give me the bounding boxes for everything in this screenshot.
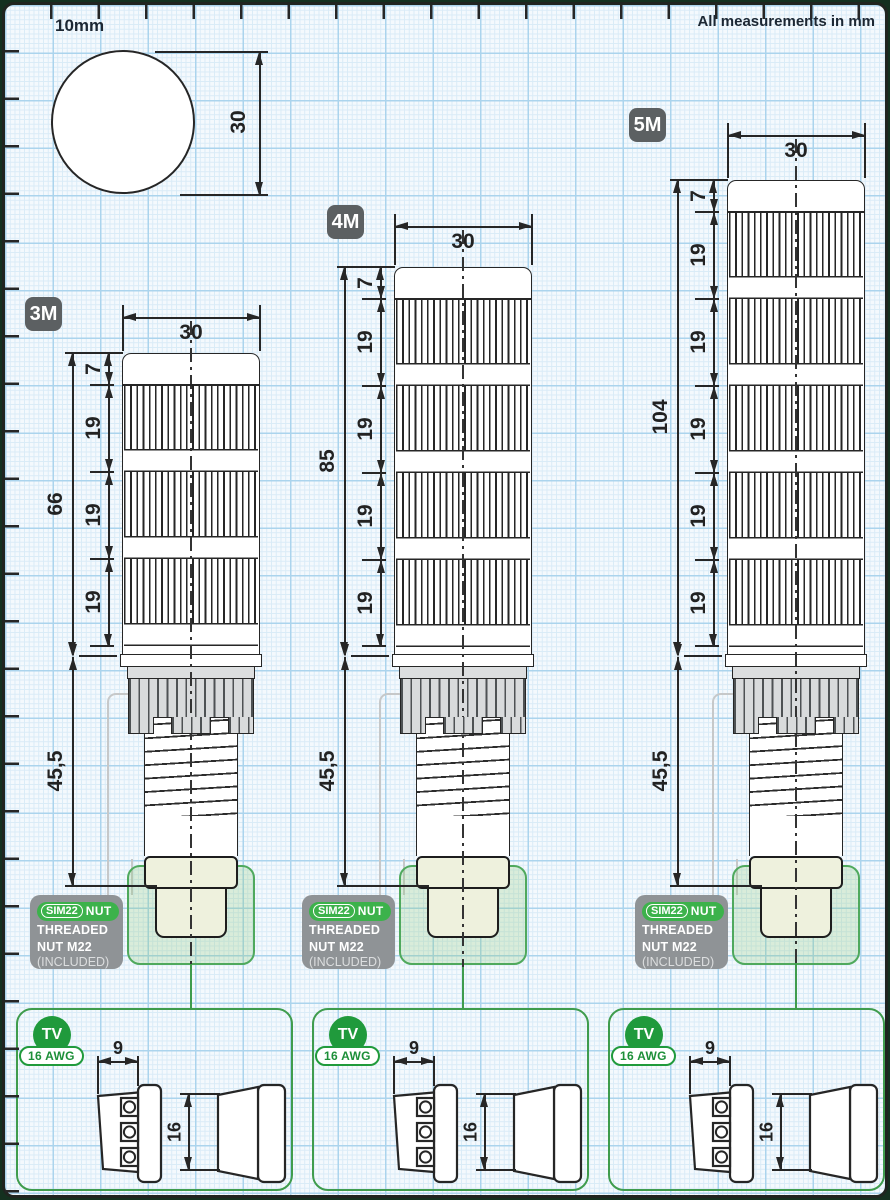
drawing-primitive: [670, 885, 762, 887]
module-height-label: 19: [687, 417, 711, 440]
wire-gauge-badge: 16 AWG: [611, 1046, 676, 1066]
drawing-primitive: [90, 471, 114, 473]
tower-3m-badge: 3M: [25, 297, 62, 331]
module-height-label: 19: [687, 330, 711, 353]
drawing-primitive: [395, 222, 408, 230]
module-height-label: 19: [82, 503, 106, 526]
overall-height-label: 66: [44, 492, 68, 515]
drawing-primitive: (INCLUDED): [642, 955, 728, 969]
terminal-height-label: 16: [165, 1122, 186, 1142]
terminal-width-label: 9: [394, 1038, 434, 1059]
drawing-primitive: [259, 52, 261, 195]
sim22-nut-pill: SIM22NUT: [309, 902, 391, 921]
cap-height-label: 7: [354, 277, 378, 289]
drawing-primitive: [72, 657, 74, 886]
drawing-primitive: [728, 131, 741, 139]
centerline: [190, 321, 191, 967]
drawing-primitive: [400, 717, 426, 734]
wire-gauge-badge: 16 AWG: [19, 1046, 84, 1066]
module-height-label: 19: [687, 591, 711, 614]
drawing-primitive: [810, 1087, 850, 1179]
drawing-primitive: [128, 717, 154, 734]
drawing-primitive: [90, 645, 114, 647]
detail-connector-line: [795, 963, 797, 1009]
drawing-primitive: THREADED: [37, 923, 123, 937]
centerline: [462, 230, 463, 967]
drawing-primitive: [684, 655, 722, 657]
drawing-primitive: [98, 1057, 111, 1065]
drawing-primitive: (INCLUDED): [309, 955, 395, 969]
sim22-nut-pill: SIM22NUT: [37, 902, 119, 921]
drawing-primitive: [433, 1056, 435, 1086]
base-height-label: 45,5: [316, 751, 340, 792]
sim22-nut-badge: SIM22NUT THREADED NUT M22 (INCLUDED): [635, 895, 728, 969]
module-height-label: 19: [354, 417, 378, 440]
drawing-primitive: [138, 1085, 161, 1182]
tower-5m-badge: 5M: [629, 108, 666, 142]
drawing-primitive: [247, 313, 260, 321]
drawing-primitive: [677, 657, 679, 886]
sim22-logo: SIM22: [646, 904, 688, 918]
drawing-primitive: [65, 885, 157, 887]
drawing-primitive: [393, 1056, 395, 1094]
ruler-ticks-left: [5, 5, 19, 1195]
drawing-primitive: [68, 353, 76, 366]
overall-height-label: 104: [649, 399, 673, 434]
drawing-primitive: [420, 1151, 431, 1162]
drawing-primitive: [776, 1157, 784, 1170]
drawing-primitive: [776, 1094, 784, 1107]
graph-paper: 10mm All measurements in mm 30 3M 30: [2, 2, 888, 1198]
terminal-height-label: 16: [461, 1122, 482, 1142]
drawing-primitive: (INCLUDED): [37, 955, 123, 969]
drawing-primitive: [728, 135, 865, 137]
lens-diameter-label: 30: [227, 110, 251, 133]
drawing-primitive: [519, 222, 532, 230]
terminal-detail-box: TV 16 AWG 9 16: [608, 1008, 885, 1191]
drawing-primitive: [716, 1151, 727, 1162]
drawing-primitive: [554, 1085, 581, 1182]
centerline: [795, 139, 796, 967]
drawing-primitive: [695, 211, 719, 213]
terminal-width-label: 9: [98, 1038, 138, 1059]
drawing-primitive: [677, 180, 679, 655]
module-height-label: 19: [82, 416, 106, 439]
drawing-primitive: [833, 717, 859, 734]
detail-connector-line: [190, 963, 192, 1009]
terminal-detail-box: TV 16 AWG 9 16: [312, 1008, 589, 1191]
drawing-primitive: [514, 1087, 554, 1179]
drawing-primitive: [90, 558, 114, 560]
base-height-label: 45,5: [649, 751, 673, 792]
cap-height-label: 7: [82, 363, 106, 375]
drawing-primitive: [124, 1126, 135, 1137]
drawing-primitive: [155, 51, 268, 53]
drawing-primitive: [344, 657, 346, 886]
drawing-primitive: [259, 305, 261, 351]
module-height-label: 19: [354, 330, 378, 353]
drawing-primitive: [776, 717, 816, 734]
drawing-primitive: [480, 1094, 488, 1107]
drawing-primitive: [228, 717, 254, 734]
drawing-primitive: [695, 385, 719, 387]
drawing-primitive: NUT: [358, 904, 384, 918]
drawing-primitive: [255, 52, 263, 65]
drawing-primitive: THREADED: [309, 923, 395, 937]
drawing-primitive: [690, 1057, 703, 1065]
drawing-primitive: [443, 717, 483, 734]
nut-callout-line: [379, 693, 401, 895]
drawing-primitive: [362, 559, 386, 561]
drawing-primitive: [716, 1101, 727, 1112]
drawing-primitive: [380, 267, 382, 647]
drawing-primitive: [344, 267, 346, 655]
drawing-primitive: [123, 317, 260, 319]
drawing-primitive: NUT M22: [642, 940, 728, 954]
drawing-primitive: NUT: [691, 904, 717, 918]
technical-drawing-page: { "page": { "ruler_label": "10mm", "unit…: [0, 0, 890, 1200]
drawing-primitive: [695, 298, 719, 300]
nut-callout-line: [107, 693, 129, 895]
drawing-primitive: [123, 313, 136, 321]
drawing-primitive: [850, 1085, 877, 1182]
units-note: All measurements in mm: [697, 13, 875, 30]
drawing-primitive: [728, 211, 864, 213]
sim22-logo: SIM22: [41, 904, 83, 918]
ruler-scale-label: 10mm: [55, 16, 104, 36]
drawing-primitive: [258, 1085, 285, 1182]
drawing-primitive: THREADED: [642, 923, 728, 937]
detail-connector-line: [462, 963, 464, 1009]
drawing-primitive: [362, 385, 386, 387]
drawing-primitive: [340, 267, 348, 280]
drawing-primitive: [695, 472, 719, 474]
tower-5m-width-label: 30: [774, 139, 818, 163]
drawing-primitive: [362, 645, 386, 647]
drawing-primitive: [695, 559, 719, 561]
module-height-label: 19: [354, 504, 378, 527]
drawing-primitive: [123, 384, 259, 386]
drawing-primitive: [362, 472, 386, 474]
drawing-primitive: [97, 1056, 99, 1094]
drawing-primitive: [337, 885, 429, 887]
drawing-primitive: [184, 1094, 192, 1107]
drawing-primitive: [729, 1056, 731, 1086]
drawing-primitive: [255, 182, 263, 195]
sim22-nut-pill: SIM22NUT: [642, 902, 724, 921]
module-height-label: 19: [354, 591, 378, 614]
drawing-primitive: [394, 1057, 407, 1065]
sim22-nut-badge: SIM22NUT THREADED NUT M22 (INCLUDED): [30, 895, 123, 969]
sim22-nut-badge: SIM22NUT THREADED NUT M22 (INCLUDED): [302, 895, 395, 969]
terminal-detail-box: TV 16 AWG 9 16: [16, 1008, 293, 1191]
drawing-primitive: NUT M22: [309, 940, 395, 954]
nut-callout-line: [712, 693, 734, 895]
drawing-primitive: [395, 226, 532, 228]
base-height-label: 45,5: [44, 751, 68, 792]
drawing-primitive: [218, 1087, 258, 1179]
drawing-primitive: NUT: [86, 904, 112, 918]
drawing-primitive: [500, 717, 526, 734]
drawing-primitive: [351, 655, 389, 657]
tower-3m-width-label: 30: [169, 321, 213, 345]
drawing-primitive: [124, 1101, 135, 1112]
drawing-primitive: [716, 1126, 727, 1137]
cap-height-label: 7: [687, 190, 711, 202]
drawing-primitive: [395, 298, 531, 300]
drawing-primitive: [695, 645, 719, 647]
tower-4m-width-label: 30: [441, 230, 485, 254]
lens-circle: [51, 50, 195, 194]
drawing-primitive: [420, 1126, 431, 1137]
drawing-primitive: [480, 1157, 488, 1170]
drawing-primitive: [79, 655, 117, 657]
drawing-primitive: [124, 1151, 135, 1162]
drawing-primitive: [90, 384, 114, 386]
drawing-primitive: [730, 1085, 753, 1182]
overall-height-label: 85: [316, 449, 340, 472]
module-height-label: 19: [687, 243, 711, 266]
drawing-primitive: [420, 1101, 431, 1112]
drawing-primitive: NUT M22: [37, 940, 123, 954]
sim22-logo: SIM22: [313, 904, 355, 918]
drawing-primitive: [362, 298, 386, 300]
module-height-label: 19: [687, 504, 711, 527]
module-height-label: 19: [82, 590, 106, 613]
drawing-primitive: [673, 180, 681, 193]
drawing-primitive: [689, 1056, 691, 1094]
drawing-primitive: [171, 717, 211, 734]
terminal-width-label: 9: [690, 1038, 730, 1059]
drawing-primitive: [713, 180, 715, 647]
drawing-primitive: [733, 717, 759, 734]
wire-gauge-badge: 16 AWG: [315, 1046, 380, 1066]
terminal-height-label: 16: [757, 1122, 778, 1142]
drawing-primitive: [72, 353, 74, 655]
drawing-primitive: [137, 1056, 139, 1086]
tower-4m-badge: 4M: [327, 205, 364, 239]
drawing-primitive: [122, 305, 124, 351]
drawing-primitive: [434, 1085, 457, 1182]
drawing-primitive: [184, 1157, 192, 1170]
drawing-primitive: [852, 131, 865, 139]
